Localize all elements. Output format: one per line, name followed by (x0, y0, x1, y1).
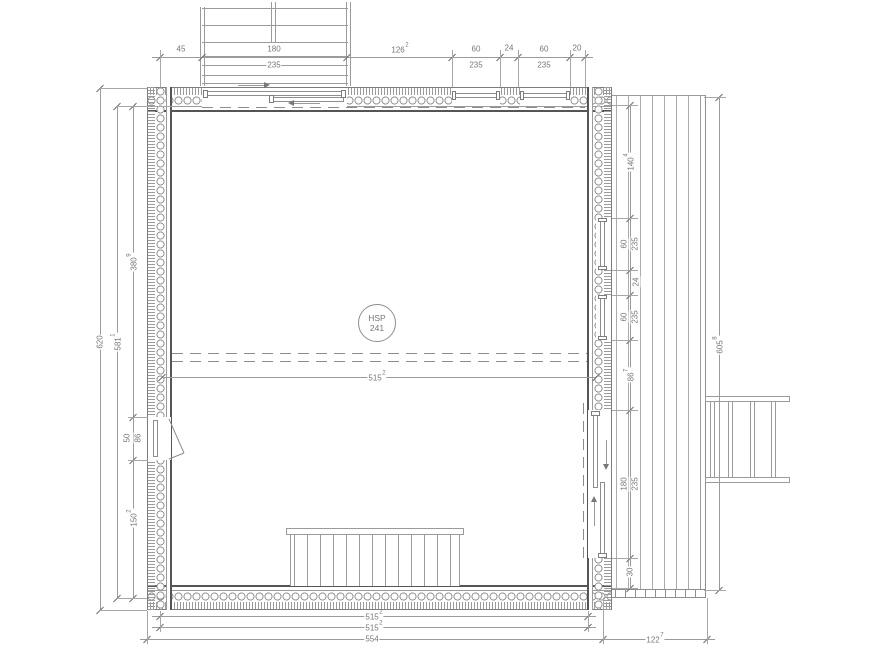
ext-line (612, 558, 638, 559)
ext-line (117, 106, 172, 107)
right-window-b-opening (596, 295, 611, 340)
dim-label: 3809 (128, 252, 139, 271)
dim-line-bottom-554-122 (140, 639, 715, 640)
right-stair-stringer-top (705, 396, 790, 402)
door-frame-block (269, 95, 274, 103)
dim-label: 1262 (390, 44, 409, 55)
dim-label: 60 (620, 312, 629, 323)
ext-line (704, 97, 726, 98)
dim-label: 235 (631, 476, 640, 491)
ext-line (147, 611, 148, 644)
window-frame-block (598, 266, 607, 270)
window-frame-block (566, 91, 570, 100)
dim-label: 60 (471, 45, 482, 54)
dim-label: 30 (626, 567, 635, 578)
top-stair-tread (202, 83, 348, 84)
dim-label: 50 (123, 433, 132, 444)
top-window-a-opening (452, 88, 500, 105)
deck-edge-inner-line (700, 95, 701, 598)
ext-line (704, 590, 726, 591)
top-stair-tread (202, 8, 348, 9)
window-glazing (523, 93, 567, 98)
right-sliding-door-opening (588, 410, 611, 558)
right-sliding-door-panel-1 (593, 413, 598, 488)
dim-line-right-chain (630, 105, 631, 588)
top-stair-tread (202, 75, 348, 76)
ext-line (117, 598, 147, 599)
top-sliding-door-panel-1 (206, 91, 344, 96)
dim-label: 235 (536, 61, 551, 70)
dim-label: 6058 (714, 335, 725, 354)
window-frame-block (598, 336, 607, 340)
right-window-a-opening (596, 218, 611, 270)
room-stamp-circle: HSP 241 (358, 304, 396, 342)
interior-stair-rail (286, 528, 464, 535)
window-glazing (600, 298, 605, 337)
dim-label: 235 (468, 61, 483, 70)
wall-left-inner-layer (166, 87, 172, 610)
wall-left-hatch-layer (147, 87, 155, 610)
ext-line (100, 88, 147, 89)
dim-line-581 (117, 106, 118, 598)
right-stair-tread (728, 402, 733, 477)
dim-label: 180 (620, 476, 629, 491)
dim-label: 180 (266, 45, 281, 54)
floor-plan-canvas: HSP 241 45 180 235 1262 60 235 24 60 235… (0, 0, 883, 652)
window-frame-block (598, 218, 607, 222)
ext-line (570, 50, 571, 87)
ext-line (100, 610, 147, 611)
ext-line (588, 611, 589, 632)
ext-line (612, 295, 638, 296)
top-stair-tread (202, 25, 348, 26)
room-stamp-line1: HSP (368, 313, 385, 323)
door-frame-block (203, 90, 208, 98)
ext-line (585, 50, 586, 87)
ext-line (612, 218, 638, 219)
door-frame-block (591, 411, 600, 416)
dim-label: 60 (620, 239, 629, 250)
upper-floor-edge-dashed-line (172, 361, 587, 362)
ext-line (603, 598, 604, 644)
window-frame-block (598, 295, 607, 299)
dim-line-top-chain (152, 57, 593, 58)
wall-left-insulation-layer (155, 87, 166, 610)
top-window-b-opening (520, 88, 570, 105)
door-frame-block (598, 553, 607, 558)
dim-label: 24 (504, 44, 515, 53)
ext-line (612, 270, 638, 271)
dim-label: 867 (625, 368, 636, 383)
ext-line (160, 50, 161, 87)
ext-line (612, 588, 638, 589)
dim-label: 235 (631, 236, 640, 251)
dim-label: 24 (632, 277, 641, 288)
ext-line (612, 340, 638, 341)
ext-line (707, 598, 708, 644)
top-wall-track-dashed-line (202, 107, 585, 108)
dim-label: 45 (176, 45, 187, 54)
dim-label: 554 (364, 635, 379, 644)
ext-line (128, 417, 148, 418)
interior-stair-treads (290, 535, 460, 586)
window-glazing (455, 93, 497, 98)
ext-line (128, 460, 148, 461)
right-sliding-door-panel-2 (600, 482, 605, 556)
top-sliding-door-opening (202, 88, 347, 107)
ext-line (452, 50, 453, 87)
dim-label: 60 (539, 45, 550, 54)
window-glazing (600, 221, 605, 267)
wall-bottom-insulation-layer (147, 591, 612, 602)
ext-line (160, 611, 161, 632)
dim-label: 1227 (645, 634, 664, 645)
upper-floor-edge-dashed-line (172, 353, 587, 354)
dim-label: 235 (631, 309, 640, 324)
dim-label: 1502 (128, 508, 139, 527)
dim-label: 620 (96, 334, 105, 349)
room-stamp-line2: 241 (370, 323, 384, 333)
dim-label: 86 (134, 433, 143, 444)
right-stair-tread (710, 402, 715, 477)
dim-label: 5152 (364, 622, 383, 633)
ext-line (612, 410, 638, 411)
right-door-dashed-line (583, 400, 584, 558)
dim-label: 235 (266, 61, 281, 70)
right-stair-stringer-bottom (705, 477, 790, 483)
dim-label: 1404 (625, 152, 636, 171)
top-stair-tread (202, 42, 348, 43)
dim-label: 5152 (367, 372, 386, 383)
dim-label: 5811 (112, 332, 123, 351)
dim-label: 20 (572, 44, 583, 53)
door-frame-block (341, 90, 346, 98)
window-frame-block (520, 91, 524, 100)
ext-line (500, 50, 501, 87)
window-frame-block (452, 91, 456, 100)
ext-line (612, 105, 638, 106)
left-window-open-flap (167, 414, 189, 464)
top-stair-stringer-right (346, 2, 351, 86)
right-stair-tread (771, 402, 776, 477)
top-sliding-door-panel-2 (272, 97, 344, 102)
ext-line (518, 50, 519, 87)
window-frame-block (496, 91, 500, 100)
right-stair-tread (750, 402, 755, 477)
window-sash (153, 420, 158, 457)
